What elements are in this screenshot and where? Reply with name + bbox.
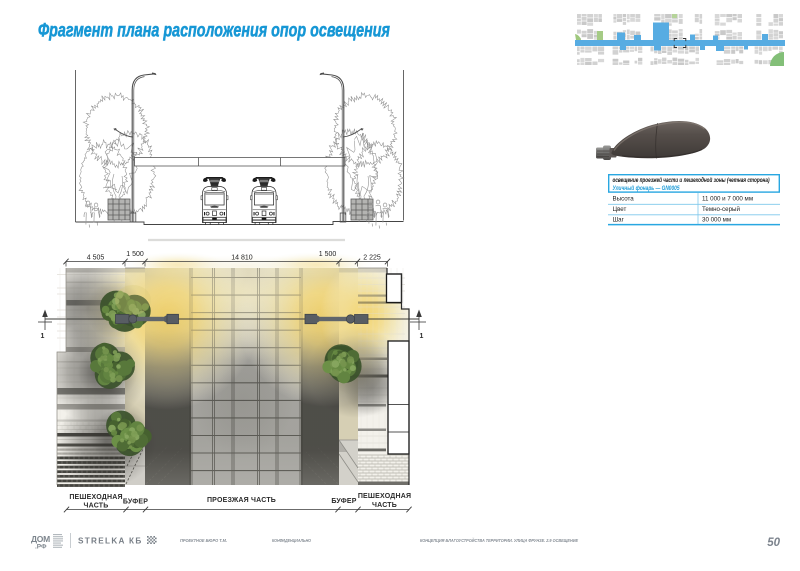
svg-text:2 225: 2 225 (363, 254, 381, 261)
svg-text:STRELKA КБ: STRELKA КБ (78, 537, 143, 546)
svg-text:1 500: 1 500 (319, 251, 337, 258)
svg-text:ПЕШЕХОДНАЯ: ПЕШЕХОДНАЯ (358, 493, 411, 500)
svg-text:БУФЕР: БУФЕР (123, 499, 148, 506)
svg-text:ПРОЕЗЖАЯ ЧАСТЬ: ПРОЕЗЖАЯ ЧАСТЬ (207, 497, 276, 504)
svg-text:ЧАСТЬ: ЧАСТЬ (372, 502, 397, 509)
svg-text:1: 1 (420, 333, 424, 340)
svg-text:ПЕШЕХОДНАЯ: ПЕШЕХОДНАЯ (69, 494, 122, 501)
svg-text:ПРОЕКТНОЕ БЮРО Т.М.: ПРОЕКТНОЕ БЮРО Т.М. (180, 538, 227, 543)
svg-text:.РФ: .РФ (35, 543, 47, 550)
svg-text:4 505: 4 505 (87, 254, 105, 261)
svg-text:1: 1 (41, 333, 45, 340)
svg-text:КОНФИДЕНЦИАЛЬНО: КОНФИДЕНЦИАЛЬНО (272, 538, 311, 543)
svg-text:БУФЕР: БУФЕР (331, 498, 356, 505)
svg-text:ДОМ: ДОМ (31, 534, 50, 544)
svg-text:ЧАСТЬ: ЧАСТЬ (84, 503, 109, 510)
svg-text:КОНЦЕПЦИЯ БЛАГОУСТРОЙСТВА ТЕРР: КОНЦЕПЦИЯ БЛАГОУСТРОЙСТВА ТЕРРИТОРИИ. УЛ… (420, 536, 579, 543)
svg-text:1 500: 1 500 (126, 251, 144, 258)
svg-text:50: 50 (767, 537, 780, 549)
svg-text:14 810: 14 810 (231, 254, 253, 261)
